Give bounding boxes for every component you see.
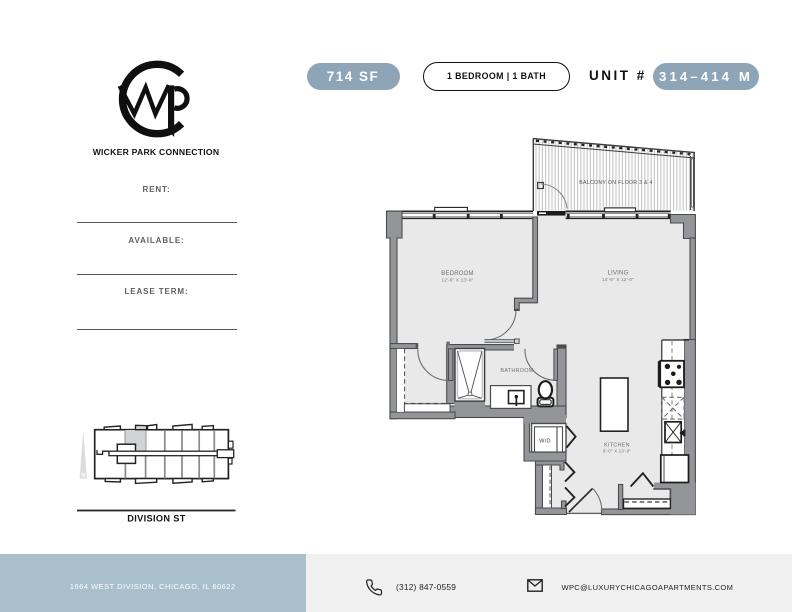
svg-text:W/D: W/D [539, 439, 551, 445]
svg-text:BALCONY ON FLOOR 3 & 4: BALCONY ON FLOOR 3 & 4 [579, 180, 652, 186]
svg-text:DIVISION ST: DIVISION ST [127, 514, 186, 524]
svg-text:N: N [81, 473, 85, 479]
svg-text:12'-6" X 13'-0": 12'-6" X 13'-0" [441, 278, 473, 283]
svg-text:LIVING: LIVING [608, 271, 629, 277]
svg-text:8'-0" X 13'-9": 8'-0" X 13'-9" [603, 449, 631, 454]
svg-text:14'-6" X 12'-0": 14'-6" X 12'-0" [602, 277, 634, 282]
svg-text:BATHROOM: BATHROOM [500, 368, 533, 374]
svg-text:BEDROOM: BEDROOM [441, 271, 473, 277]
